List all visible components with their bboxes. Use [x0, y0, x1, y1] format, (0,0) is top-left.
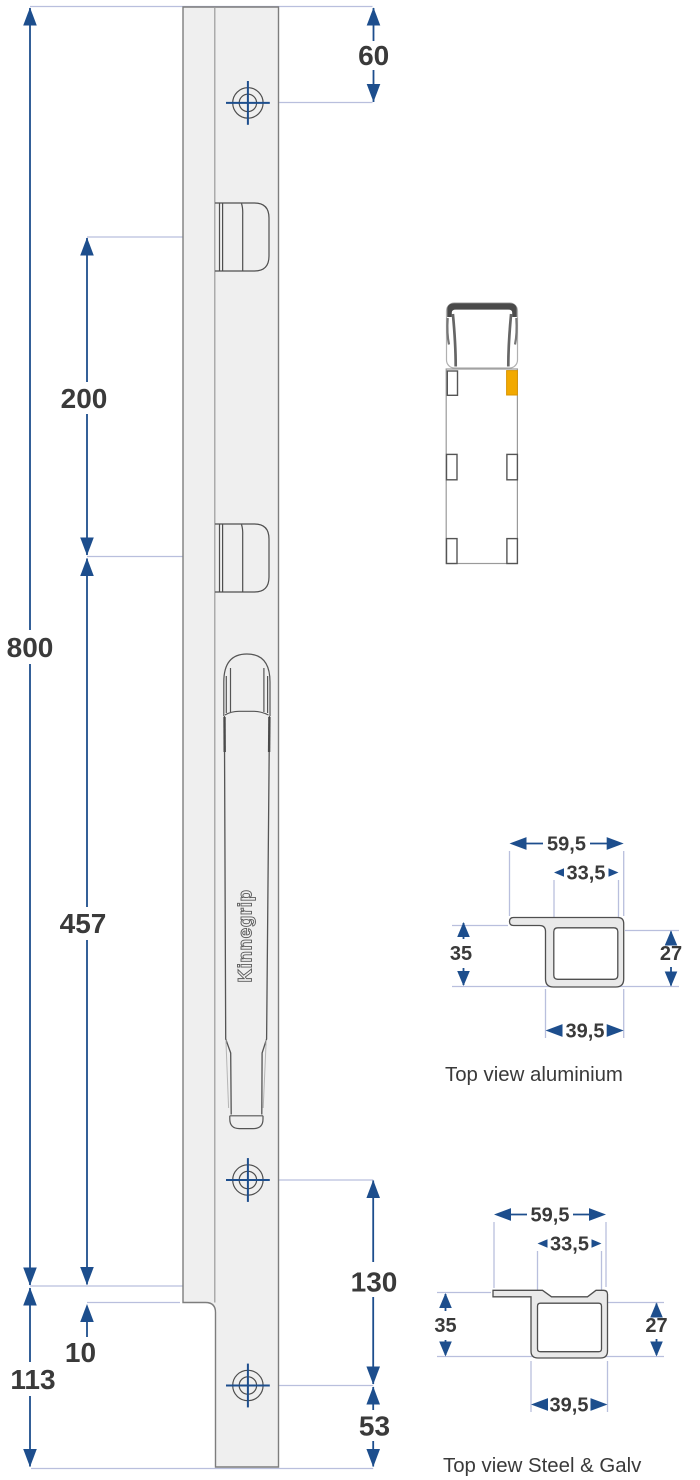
svg-text:33,5: 33,5: [550, 1234, 589, 1256]
svg-text:59,5: 59,5: [547, 834, 586, 856]
svg-text:10: 10: [65, 1337, 96, 1368]
svg-text:27: 27: [645, 1315, 667, 1337]
svg-text:27: 27: [660, 943, 682, 965]
svg-text:130: 130: [351, 1267, 398, 1298]
svg-text:Top view Steel & Galv: Top view Steel & Galv: [443, 1455, 642, 1477]
svg-text:60: 60: [358, 40, 389, 71]
svg-text:35: 35: [450, 943, 472, 965]
svg-text:Kinnegrip: Kinnegrip: [236, 889, 257, 982]
svg-text:33,5: 33,5: [567, 863, 606, 885]
svg-text:39,5: 39,5: [550, 1395, 589, 1417]
svg-text:59,5: 59,5: [531, 1205, 570, 1227]
svg-text:35: 35: [434, 1315, 456, 1337]
svg-text:200: 200: [61, 383, 108, 414]
svg-text:39,5: 39,5: [566, 1021, 605, 1043]
svg-text:457: 457: [60, 908, 107, 939]
svg-text:800: 800: [7, 632, 54, 663]
svg-text:53: 53: [359, 1411, 390, 1442]
svg-text:113: 113: [10, 1364, 55, 1395]
svg-text:Top view aluminium: Top view aluminium: [445, 1064, 623, 1086]
